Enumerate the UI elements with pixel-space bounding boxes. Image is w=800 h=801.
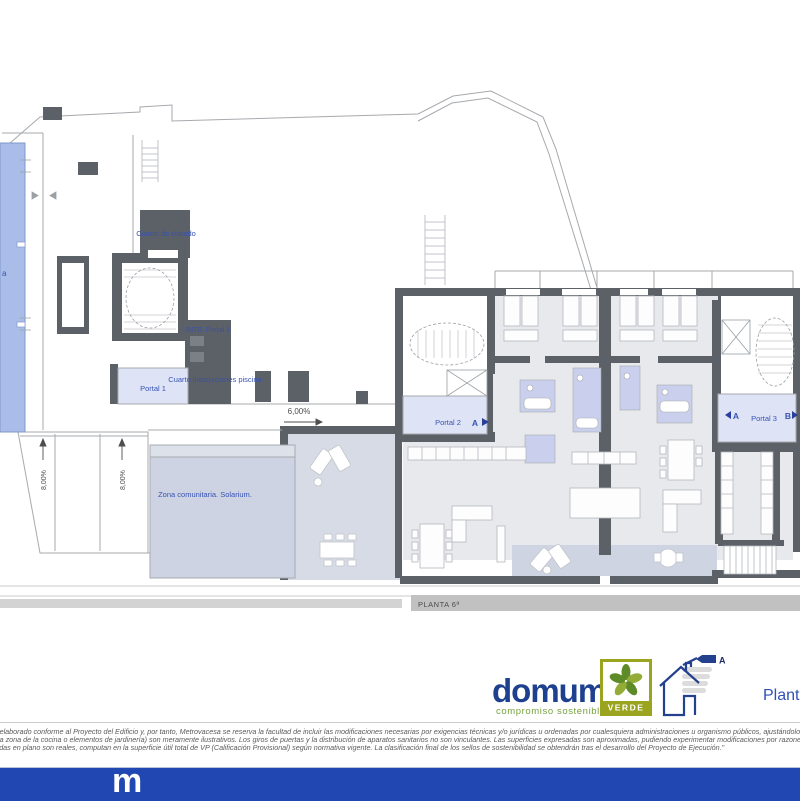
energy-label-icon: A <box>650 654 730 720</box>
pool-label: a <box>2 269 7 278</box>
domum-logo-text: domu <box>492 672 578 709</box>
plan-caption: Plant <box>763 687 799 705</box>
divider-line <box>0 722 800 723</box>
floor-plan: a Cuarto de clorado RITS. Portal 1 Cuart… <box>0 0 800 620</box>
label-slope-8-left: 8,00% <box>41 470 48 490</box>
label-portal-2: Portal 2 <box>435 418 461 427</box>
section-bar-planta <box>411 595 800 611</box>
label-instalaciones-piscina: Cuarto instalaciones piscina <box>168 375 262 384</box>
section-bar-left <box>0 599 402 608</box>
label-portal-3: Portal 3 <box>751 414 777 423</box>
pool-ladder-icon <box>17 322 25 327</box>
footer-watermark: m <box>112 764 142 798</box>
solarium-area <box>150 445 295 578</box>
label-portal-2-marker: A <box>472 418 478 428</box>
page: { "plan": { "labels": { "pool_fragment":… <box>0 0 800 800</box>
domum-tagline: compromiso sostenible <box>496 706 606 717</box>
label-slope-6: 6,00% <box>288 407 311 416</box>
verde-badge-label: VERDE <box>608 703 645 713</box>
label-zona-comunitaria: Zona comunitaria. Solarium. <box>158 490 252 499</box>
disclaimer-line-3: lejadas en plano son reales, computan en… <box>0 743 724 752</box>
domum-logo: domum <box>492 674 606 707</box>
label-rits: RITS. Portal 1 <box>186 327 230 334</box>
label-portal-3-marker-a: A <box>733 411 739 421</box>
label-portal-1: Portal 1 <box>140 384 166 393</box>
label-portal-3-marker-b: B <box>785 411 791 421</box>
label-planta-section: PLANTA 6ª <box>418 600 460 609</box>
energy-rating-label: A <box>719 656 726 666</box>
stairs-lower <box>724 546 776 574</box>
portal2-lobby <box>403 396 487 434</box>
pool <box>0 143 25 432</box>
verde-badge: VERDE <box>600 659 652 716</box>
pool-ladder-icon <box>17 242 25 247</box>
ground-lines <box>0 586 800 596</box>
label-slope-8-right: 8,00% <box>120 470 127 490</box>
label-cuarto-clorado: Cuarto de clorado <box>136 229 196 238</box>
energy-arrow-icon <box>696 655 716 663</box>
